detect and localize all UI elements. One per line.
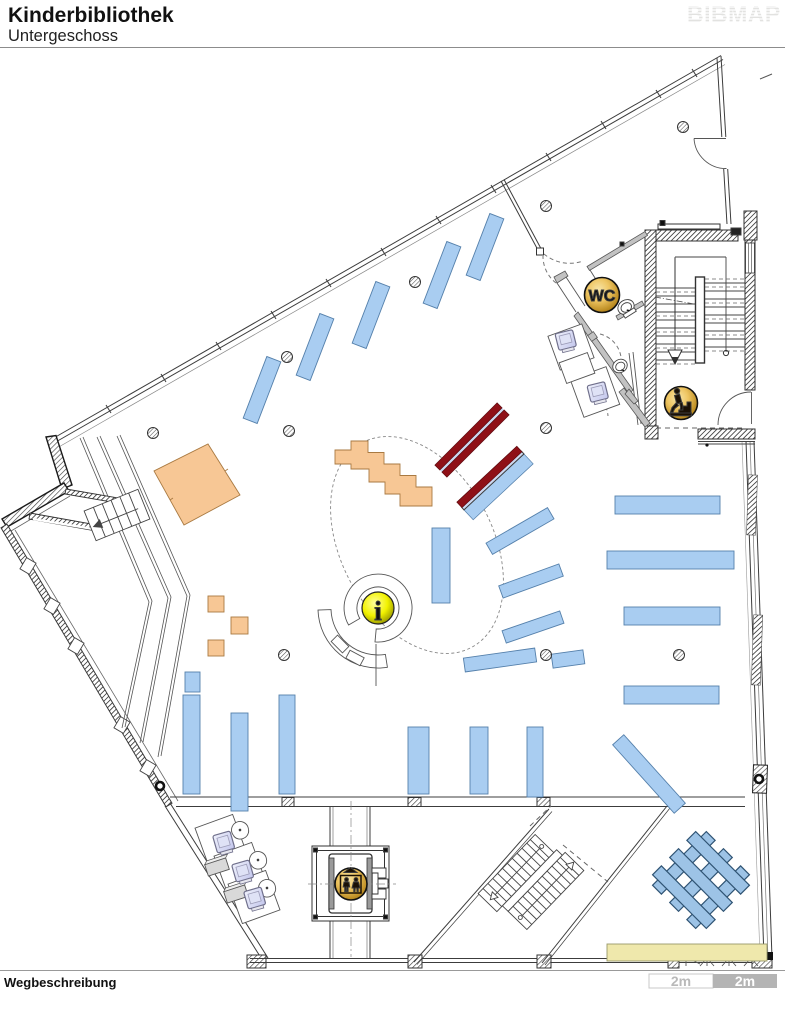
svg-text:2m: 2m bbox=[671, 973, 691, 989]
svg-text:Untergeschoss: Untergeschoss bbox=[8, 27, 118, 45]
svg-text:Kinderbibliothek: Kinderbibliothek bbox=[8, 4, 174, 27]
svg-text:2m: 2m bbox=[735, 973, 755, 989]
svg-text:WC: WC bbox=[589, 288, 616, 305]
svg-text:i: i bbox=[374, 596, 382, 626]
svg-text:Wegbeschreibung: Wegbeschreibung bbox=[4, 975, 117, 990]
svg-text:BIBMAP: BIBMAP bbox=[687, 1, 781, 27]
